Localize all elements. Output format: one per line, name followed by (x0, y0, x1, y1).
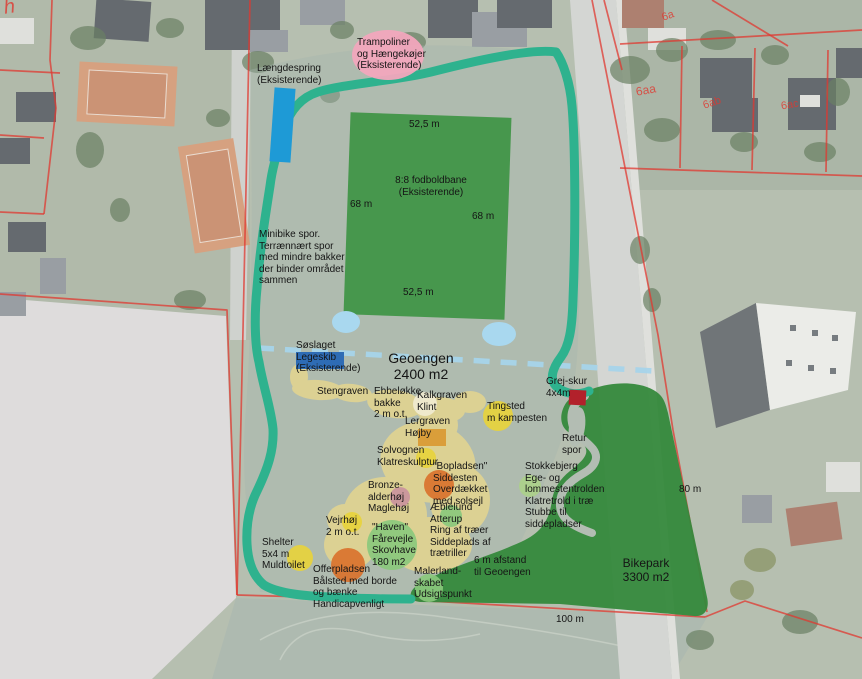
pond-left (332, 311, 360, 333)
trampoliner-label: Trampoliner og Hængekøjer (Eksisterende) (357, 37, 426, 72)
stengraven-label: Stengraven (317, 386, 368, 398)
tingsted-label: Tingsted m kampesten (487, 401, 547, 424)
parcel-h-label: h (2, 0, 16, 20)
field-side-left-label: 68 m (350, 199, 372, 211)
aeblelund-label: Æblelund Atterup Ring af træer Siddeplad… (430, 502, 491, 560)
bikepark-label: Bikepark 3300 m2 (623, 557, 670, 585)
field-name-label: 8:8 fodboldbane (Eksisterende) (395, 175, 467, 198)
long-jump-strip (269, 87, 295, 162)
offerpladsen-label: Offerpladsen Bålsted med borde og bænke … (313, 564, 397, 610)
minibike-label: Minibike spor. Terrænnært spor med mindr… (259, 229, 345, 287)
stokkebjerg-label: Stokkebjerg Ege- og lommestentrolden Kla… (525, 461, 604, 531)
bopladsen-label: "Bopladsen" Siddesten Overdækket med sol… (433, 461, 487, 507)
bronzealderhoej-label: Bronze- alderhøj Maglehøj (368, 480, 409, 515)
shelter-label: Shelter 5x4 m Muldtoilet (262, 537, 305, 572)
field-side-right-label: 68 m (472, 211, 494, 223)
site-plan-map: Længdespring (Eksisterende)Trampoliner o… (0, 0, 862, 679)
vejrhoej-label: Vejrhøj 2 m o.t. (326, 515, 359, 538)
field-width-top-label: 52,5 m (409, 119, 440, 131)
solvognen-label: Solvognen Klatreskulptur (377, 445, 438, 468)
lergraven-label: Lergraven Højby (405, 416, 450, 439)
geoengen-label: Geoengen 2400 m2 (388, 350, 453, 382)
afstand-geoengen-label: 6 m afstand til Geoengen (474, 555, 531, 578)
soeslaget-label: Søslaget Legeskib (Eksisterende) (296, 340, 360, 375)
kalkgraven-label: Kalkgraven Klint (417, 390, 467, 413)
grejskur-label: Grej-skur 4x4m (546, 376, 587, 399)
laengdespring-label: Længdespring (Eksisterende) (257, 63, 321, 86)
haven-label: "Haven" Fårevejle Skovhave 180 m2 (372, 522, 416, 568)
pond-right (482, 322, 516, 346)
retur-spor-label: Retur spor (562, 433, 586, 456)
field-width-bottom-label: 52,5 m (403, 287, 434, 299)
dim-100m-label: 100 m (556, 614, 584, 626)
dim-80m-label: 80 m (679, 484, 701, 496)
malerlandskabet-label: Malerland- skabet Udsigtspunkt (414, 566, 472, 601)
minibike-track-right (552, 52, 589, 394)
